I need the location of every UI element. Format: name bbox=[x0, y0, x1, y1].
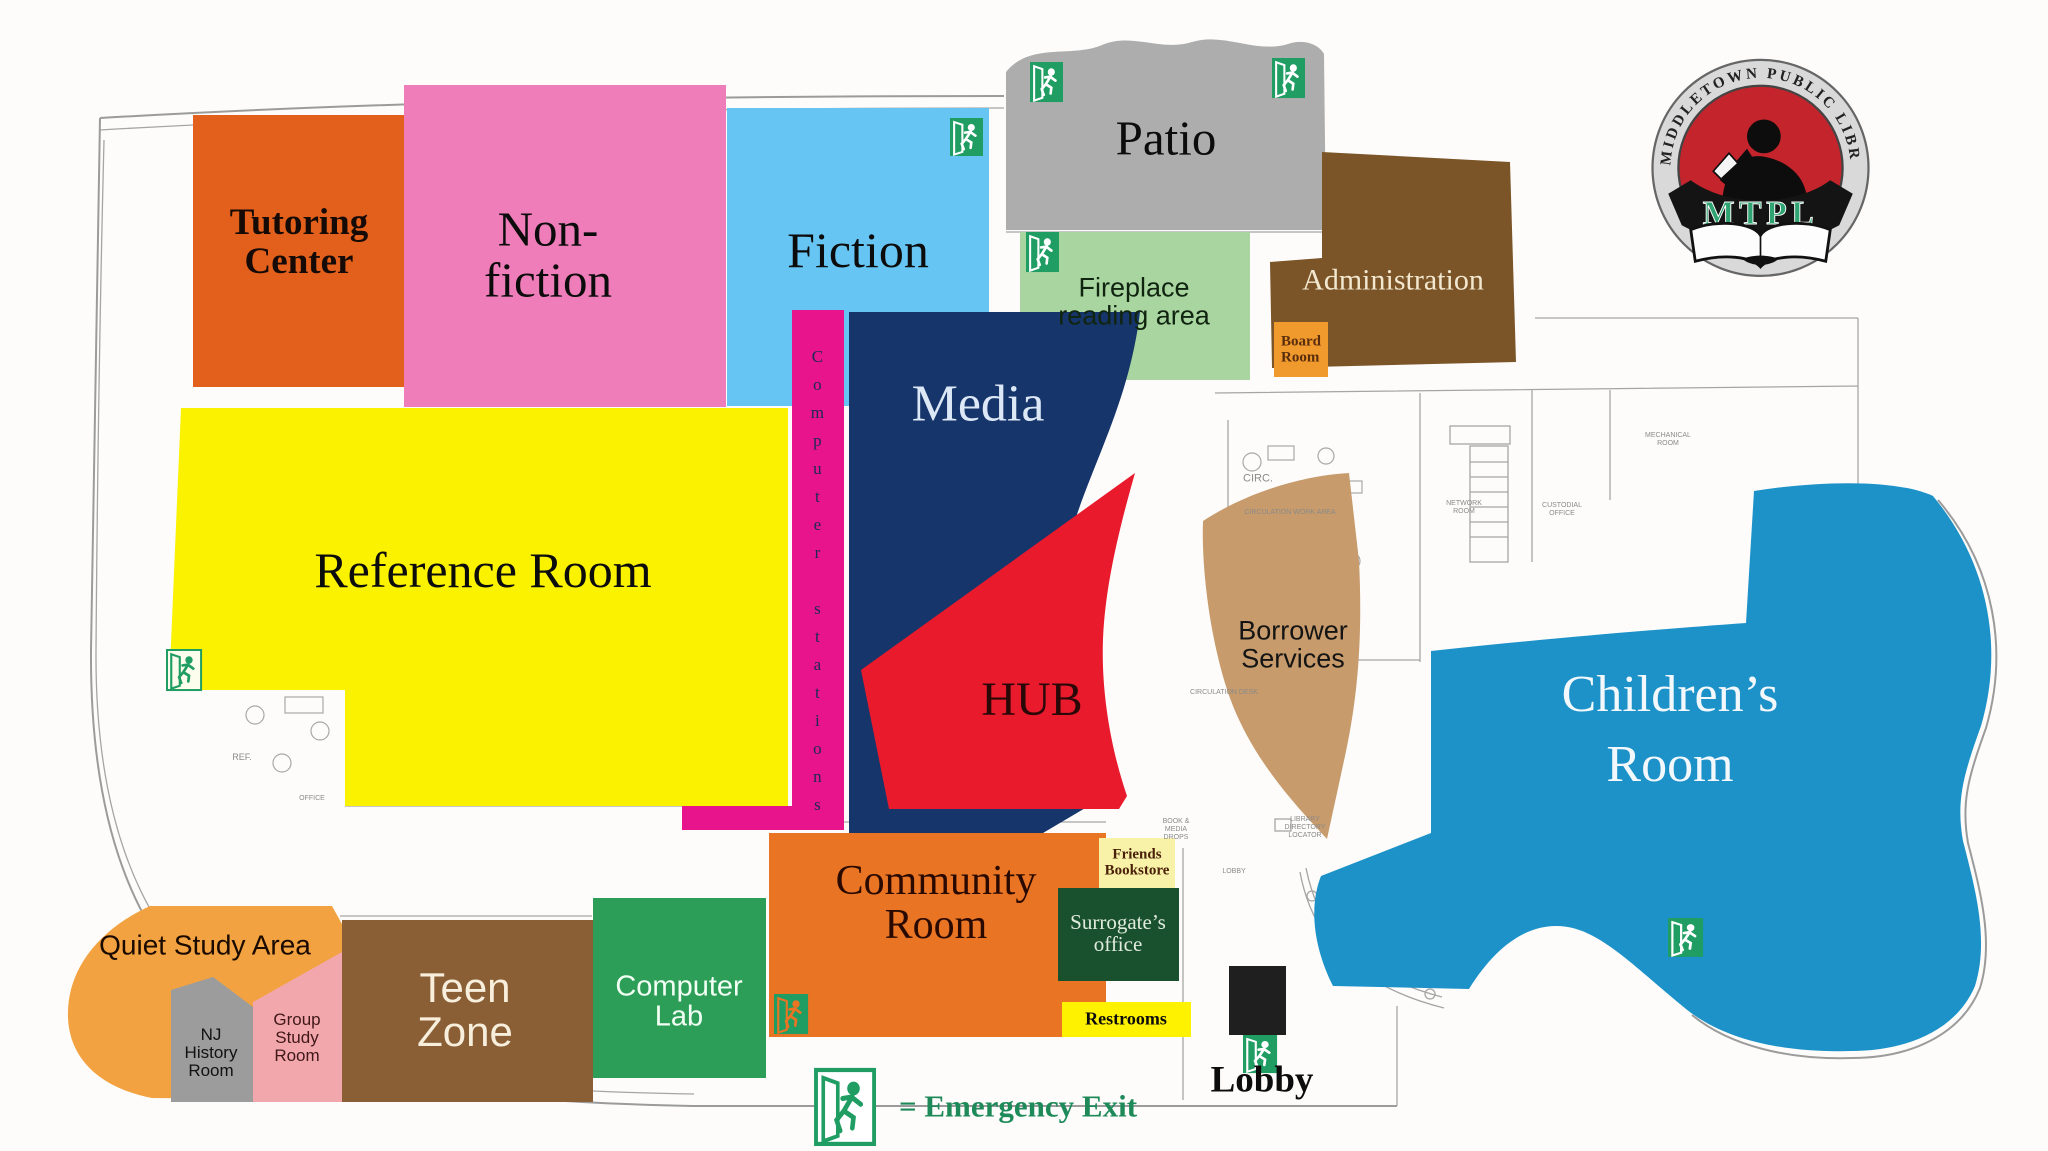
plan-label-directory: LIBRARY DIRECTORY LOCATOR bbox=[1285, 816, 1326, 840]
library-logo: MIDDLETOWN PUBLIC LIBRARY MTPL bbox=[0, 0, 2048, 1151]
plan-label-circ-work: CIRCULATION WORK AREA bbox=[1244, 509, 1335, 517]
plan-label-ref: REF. bbox=[232, 752, 252, 762]
library-floor-plan: MIDDLETOWN PUBLIC LIBRARY MTPL Tutoring … bbox=[0, 0, 2048, 1151]
plan-label-lobby-small: LOBBY bbox=[1222, 868, 1245, 876]
plan-label-network-room: NETWORK ROOM bbox=[1446, 500, 1482, 516]
plan-label-media-drops: BOOK & MEDIA DROPS bbox=[1163, 818, 1190, 842]
plan-label-office: OFFICE bbox=[299, 795, 325, 803]
plan-label-mechanical-room: MECHANICAL ROOM bbox=[1645, 432, 1691, 448]
plan-label-circ-desk: CIRCULATION DESK bbox=[1190, 689, 1258, 697]
plan-label-circ: CIRC. bbox=[1243, 473, 1273, 486]
plan-label-custodial-office: CUSTODIAL OFFICE bbox=[1542, 502, 1582, 518]
